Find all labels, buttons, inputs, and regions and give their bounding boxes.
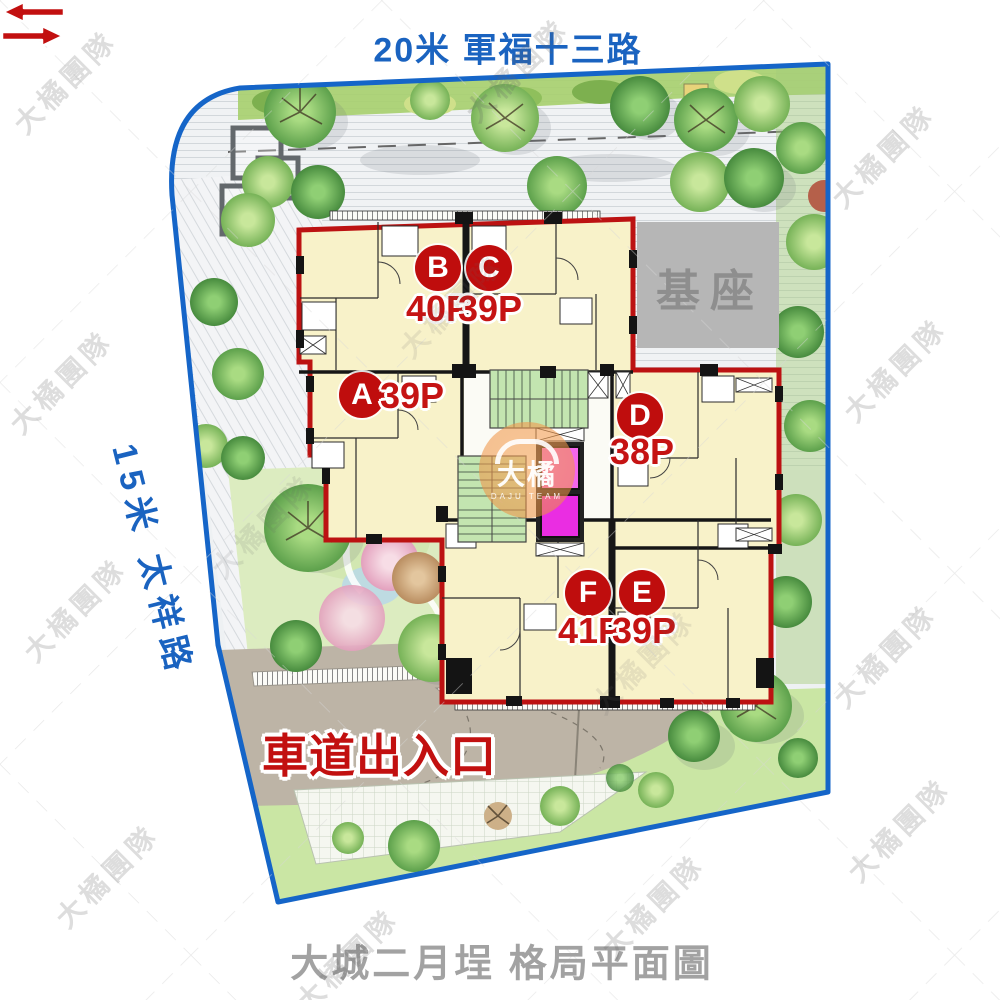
logo-sub-text: DAJU TEAM [491, 492, 563, 501]
site-plan-image: 20米 軍福十三路 15米 太祥路 基座 B 40P C 39P A 39P D… [0, 0, 1000, 1000]
driveway-label: 車道出入口 [262, 720, 497, 786]
unit-area-a: 39P [380, 375, 444, 417]
team-logo-watermark: 大橘 DAJU TEAM [479, 422, 575, 518]
logo-main-text: 大橘 [497, 460, 557, 489]
unit-badge-a: A [339, 372, 385, 418]
base-podium-label: 基座 [656, 255, 764, 319]
unit-area-d: 38P [610, 431, 674, 473]
driveway-arrows-icon [0, 0, 66, 50]
